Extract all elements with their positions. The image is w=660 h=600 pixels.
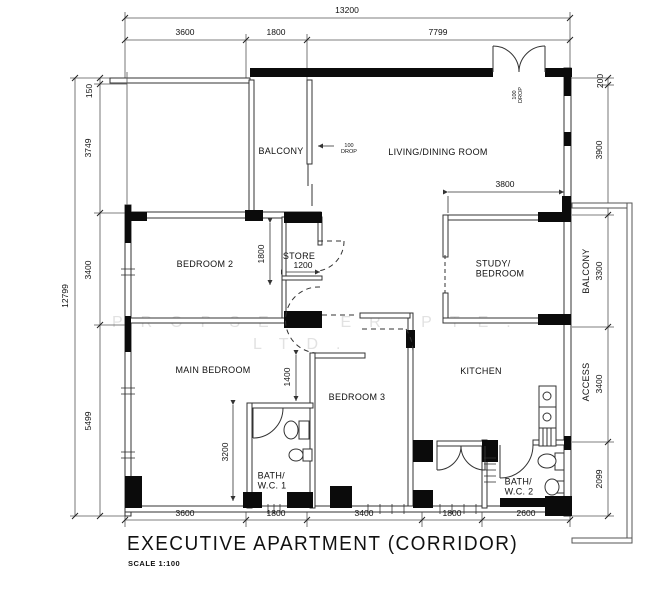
plan-scale: SCALE 1:100: [128, 559, 180, 568]
room-kitchen: KITCHEN: [460, 366, 502, 376]
dim-right-3: 3300: [595, 262, 605, 281]
basin-bath2: [545, 479, 564, 495]
dim-bottom-5: 2600: [517, 509, 536, 519]
dim-bottom-4: 1800: [443, 509, 462, 519]
dim-left-1: 150: [85, 84, 95, 98]
plan-title: EXECUTIVE APARTMENT (CORRIDOR): [127, 533, 518, 556]
dim-bottom-3: 3400: [355, 509, 374, 519]
balcony-drop-note: 100 DROP: [341, 143, 357, 155]
room-main-bedroom: MAIN BEDROOM: [175, 365, 250, 375]
room-bath-wc2: BATH/ W.C. 2: [505, 477, 534, 498]
dim-store-width: 1200: [294, 261, 313, 271]
window-ticks: [121, 269, 496, 514]
sliding-door: [308, 164, 445, 293]
dim-top-2: 1800: [267, 28, 286, 38]
room-study-bedroom: STUDY/ BEDROOM: [476, 259, 525, 280]
walls-thin: [110, 68, 571, 516]
room-access: ACCESS: [581, 363, 591, 402]
dim-store-height: 1800: [257, 245, 267, 264]
dim-right-5: 2099: [595, 470, 605, 489]
floorplan-drawing: [0, 0, 660, 600]
dim-right-2: 3900: [595, 141, 605, 160]
dim-top-3: 7799: [429, 28, 448, 38]
dim-study-width: 3800: [496, 180, 515, 190]
toilet-bath1: [284, 421, 309, 439]
dim-right-4: 3400: [595, 375, 605, 394]
basin-bath1: [289, 449, 312, 461]
room-bedroom3: BEDROOM 3: [329, 392, 386, 402]
room-living-dining: LIVING/DINING ROOM: [388, 147, 487, 157]
dim-bath1-length: 3200: [221, 443, 231, 462]
room-balcony-top: BALCONY: [258, 146, 303, 156]
dim-top-1: 3600: [176, 28, 195, 38]
entry-drop-note: 100 DROP: [512, 87, 524, 103]
dim-bath1-offset: 1400: [283, 368, 293, 387]
room-store: STORE: [283, 251, 315, 261]
kitchen-sink: [539, 386, 556, 446]
dim-bottom-2: 1800: [267, 509, 286, 519]
walls-black: [125, 68, 572, 516]
room-bedroom2: BEDROOM 2: [177, 259, 234, 269]
dim-right-1: 200: [596, 74, 606, 88]
dim-left-3: 3400: [84, 261, 94, 280]
dim-left-4: 5499: [84, 412, 94, 431]
toilet-bath2: [538, 453, 564, 470]
dim-left-2: 3749: [84, 139, 94, 158]
room-balcony-right: BALCONY: [581, 248, 591, 293]
dim-bottom-1: 3600: [176, 509, 195, 519]
floorplan-page: PROPSELLER PTE. LTD.: [0, 0, 660, 600]
dim-left-total: 12799: [61, 284, 71, 308]
dim-top-total: 13200: [335, 6, 359, 16]
room-bath-wc1: BATH/ W.C. 1: [258, 471, 287, 492]
